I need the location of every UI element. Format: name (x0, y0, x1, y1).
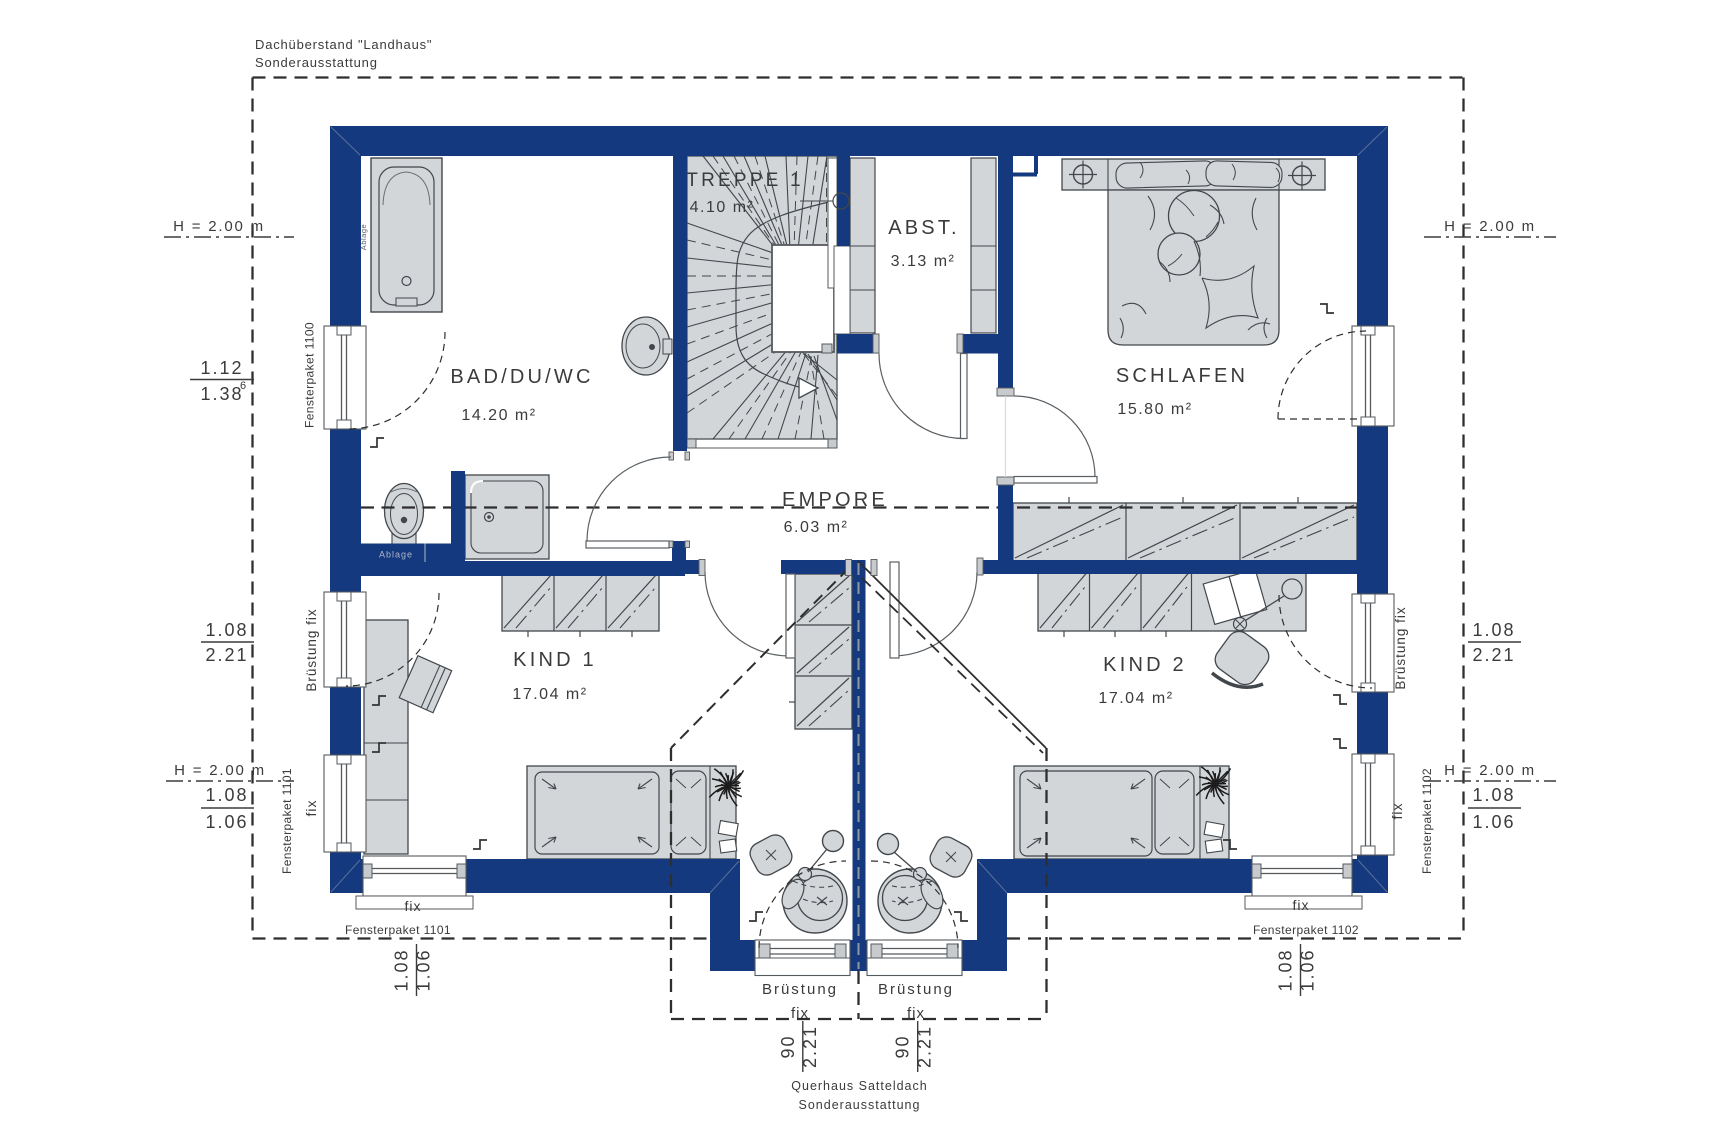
svg-text:Dachüberstand "Landhaus": Dachüberstand "Landhaus" (255, 37, 432, 52)
svg-text:2.21: 2.21 (1472, 645, 1515, 665)
svg-text:Brüstung fix: Brüstung fix (1393, 606, 1408, 689)
svg-text:Fensterpaket 1102: Fensterpaket 1102 (1420, 768, 1434, 874)
svg-text:Querhaus Satteldach: Querhaus Satteldach (791, 1079, 927, 1093)
svg-text:EMPORE: EMPORE (782, 489, 888, 511)
svg-text:2.21: 2.21 (915, 1025, 935, 1068)
svg-text:2.21: 2.21 (800, 1025, 820, 1068)
svg-text:2.21: 2.21 (205, 645, 248, 665)
svg-text:1.38: 1.38 (200, 384, 243, 404)
svg-text:KIND 2: KIND 2 (1103, 654, 1187, 676)
svg-text:17.04 m²: 17.04 m² (512, 686, 587, 703)
svg-text:Brüstung: Brüstung (762, 981, 838, 998)
svg-text:Fensterpaket 1101: Fensterpaket 1101 (280, 768, 294, 874)
svg-text:Fensterpaket 1102: Fensterpaket 1102 (1253, 923, 1359, 937)
svg-text:6.03 m²: 6.03 m² (784, 519, 849, 536)
svg-text:4.10 m²: 4.10 m² (690, 199, 755, 216)
svg-text:H = 2.00 m: H = 2.00 m (174, 762, 266, 779)
svg-text:Fensterpaket 1100: Fensterpaket 1100 (303, 322, 317, 428)
svg-text:KIND 1: KIND 1 (513, 649, 597, 671)
svg-text:1.06: 1.06 (414, 948, 434, 991)
svg-text:Ablage: Ablage (379, 550, 413, 560)
svg-text:1.08: 1.08 (1472, 785, 1515, 805)
svg-text:H = 2.00 m: H = 2.00 m (1444, 762, 1536, 779)
svg-text:1.08: 1.08 (1472, 620, 1515, 640)
svg-text:fix: fix (405, 898, 422, 914)
svg-text:15.80 m²: 15.80 m² (1117, 401, 1192, 418)
svg-text:Brüstung: Brüstung (878, 981, 954, 998)
svg-text:1.08: 1.08 (205, 620, 248, 640)
svg-text:H = 2.00 m: H = 2.00 m (173, 218, 265, 235)
svg-text:Sonderausstattung: Sonderausstattung (255, 55, 378, 70)
svg-text:14.20 m²: 14.20 m² (461, 407, 536, 424)
svg-text:fix: fix (1293, 897, 1310, 913)
svg-text:1.08: 1.08 (205, 785, 248, 805)
svg-text:1.06: 1.06 (1298, 948, 1318, 991)
svg-text:TREPPE 1: TREPPE 1 (686, 170, 803, 191)
svg-text:1.06: 1.06 (1472, 812, 1515, 832)
svg-text:6: 6 (240, 380, 246, 392)
svg-text:17.04 m²: 17.04 m² (1098, 690, 1173, 707)
svg-text:ABST.: ABST. (888, 217, 960, 239)
svg-text:90: 90 (778, 1034, 798, 1058)
svg-text:SCHLAFEN: SCHLAFEN (1116, 365, 1248, 387)
svg-text:1.08: 1.08 (1276, 948, 1296, 991)
svg-text:1.12: 1.12 (200, 358, 243, 378)
svg-text:fix: fix (303, 800, 319, 817)
svg-text:H = 2.00 m: H = 2.00 m (1444, 218, 1536, 235)
svg-text:fix: fix (1389, 803, 1405, 820)
svg-text:Sonderausstattung: Sonderausstattung (799, 1098, 921, 1112)
svg-text:1.06: 1.06 (205, 812, 248, 832)
svg-text:Brüstung fix: Brüstung fix (304, 608, 319, 691)
svg-text:1.08: 1.08 (392, 948, 412, 991)
svg-text:BAD/DU/WC: BAD/DU/WC (450, 366, 593, 388)
svg-text:3.13 m²: 3.13 m² (891, 253, 956, 270)
svg-text:fix: fix (791, 1005, 809, 1022)
svg-text:Fensterpaket 1101: Fensterpaket 1101 (345, 923, 451, 937)
svg-text:90: 90 (893, 1034, 913, 1058)
svg-text:fix: fix (907, 1005, 925, 1022)
